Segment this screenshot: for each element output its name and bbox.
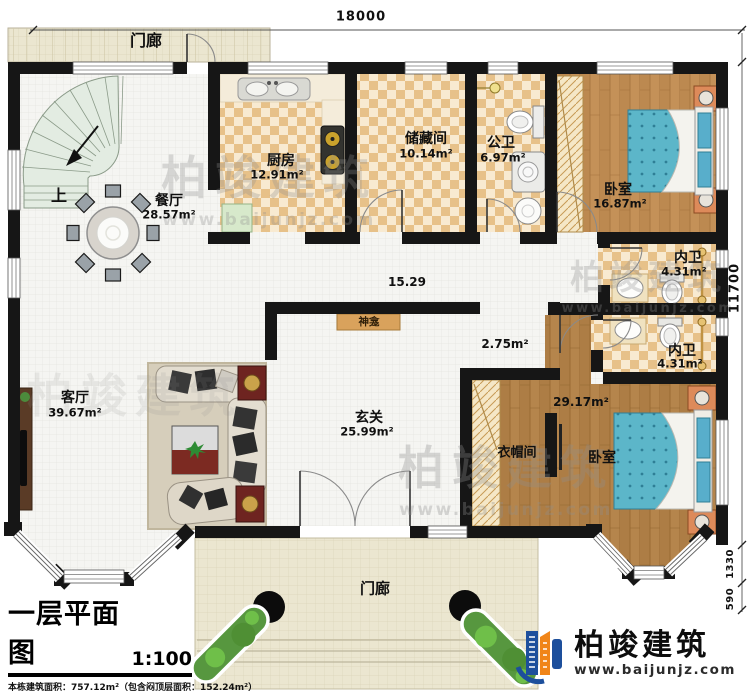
stove bbox=[321, 126, 344, 174]
stair-up-label: 上 bbox=[51, 188, 67, 204]
bedroom1-wardrobe bbox=[557, 76, 583, 232]
bedroom2-tv bbox=[559, 424, 562, 470]
room-label-foyer: 玄关 bbox=[355, 411, 383, 425]
company-logo: 柏竣建筑 www.baijunjz.com bbox=[514, 623, 736, 685]
living-room-set bbox=[148, 363, 266, 529]
dimension-step: 590 bbox=[726, 588, 736, 610]
dimension-top: 18000 bbox=[336, 11, 386, 24]
dimension-right: 11700 bbox=[729, 263, 742, 313]
room-label-public-bath: 公卫 bbox=[487, 136, 515, 150]
room-area-bedroom1: 16.87m² bbox=[593, 198, 646, 210]
logo-url: www.baijunjz.com bbox=[574, 662, 736, 678]
stat-total-area: 本栋建筑面积：757.12m²（包含闷顶层面积：152.24m²） bbox=[8, 681, 238, 691]
room-area-public-bath: 6.97m² bbox=[480, 152, 525, 164]
room-label-living: 客厅 bbox=[61, 391, 89, 405]
room-label-kitchen: 厨房 bbox=[267, 154, 295, 168]
room-label-cloakroom: 衣帽间 bbox=[497, 447, 536, 460]
room-area-living: 39.67m² bbox=[48, 407, 101, 419]
dimension-bay: 1330 bbox=[726, 549, 736, 579]
kitchen-cabinet bbox=[222, 204, 252, 232]
room-label-porch-top: 门廊 bbox=[130, 33, 162, 49]
room-area-foyer: 25.99m² bbox=[340, 426, 393, 438]
tv-cabinet bbox=[18, 388, 32, 510]
plan-scale: 1:100 bbox=[132, 648, 192, 670]
room-area-bedroom2: 29.17m² bbox=[553, 396, 609, 408]
room-label-ensuite-top: 内卫 bbox=[674, 251, 702, 265]
room-area-ensuite-top: 4.31m² bbox=[661, 266, 706, 278]
room-label-porch-bottom: 门廊 bbox=[360, 582, 390, 597]
shrine-label: 神龛 bbox=[359, 317, 380, 328]
logo-brand: 柏竣建筑 bbox=[574, 630, 736, 662]
cloakroom-wardrobe bbox=[472, 380, 500, 526]
plan-title: 一层平面图 bbox=[8, 592, 124, 670]
room-label-bedroom1: 卧室 bbox=[604, 183, 632, 197]
hallway-area: 15.29 bbox=[388, 276, 426, 288]
room-area-dining: 28.57m² bbox=[142, 209, 195, 221]
kitchen-sink bbox=[238, 78, 310, 100]
title-block: 一层平面图 1:100 本栋建筑面积：757.12m²（包含闷顶层面积：152.… bbox=[8, 592, 238, 691]
floor-plan-page: 柏竣建筑 柏竣建筑 www.baijunjz.com 柏竣建筑 www.baij… bbox=[0, 0, 750, 691]
room-area-storage: 10.14m² bbox=[399, 148, 452, 160]
room-label-bedroom2: 卧室 bbox=[588, 451, 616, 465]
room-label-storage: 储藏间 bbox=[405, 132, 447, 146]
room-label-dining: 餐厅 bbox=[155, 194, 183, 208]
inner-hall-area: 2.75m² bbox=[481, 338, 528, 350]
plant bbox=[20, 392, 30, 402]
room-area-ensuite-bottom: 4.31m² bbox=[657, 358, 702, 370]
tv bbox=[20, 430, 27, 486]
logo-icon bbox=[514, 623, 566, 685]
room-area-kitchen: 12.91m² bbox=[250, 169, 303, 181]
